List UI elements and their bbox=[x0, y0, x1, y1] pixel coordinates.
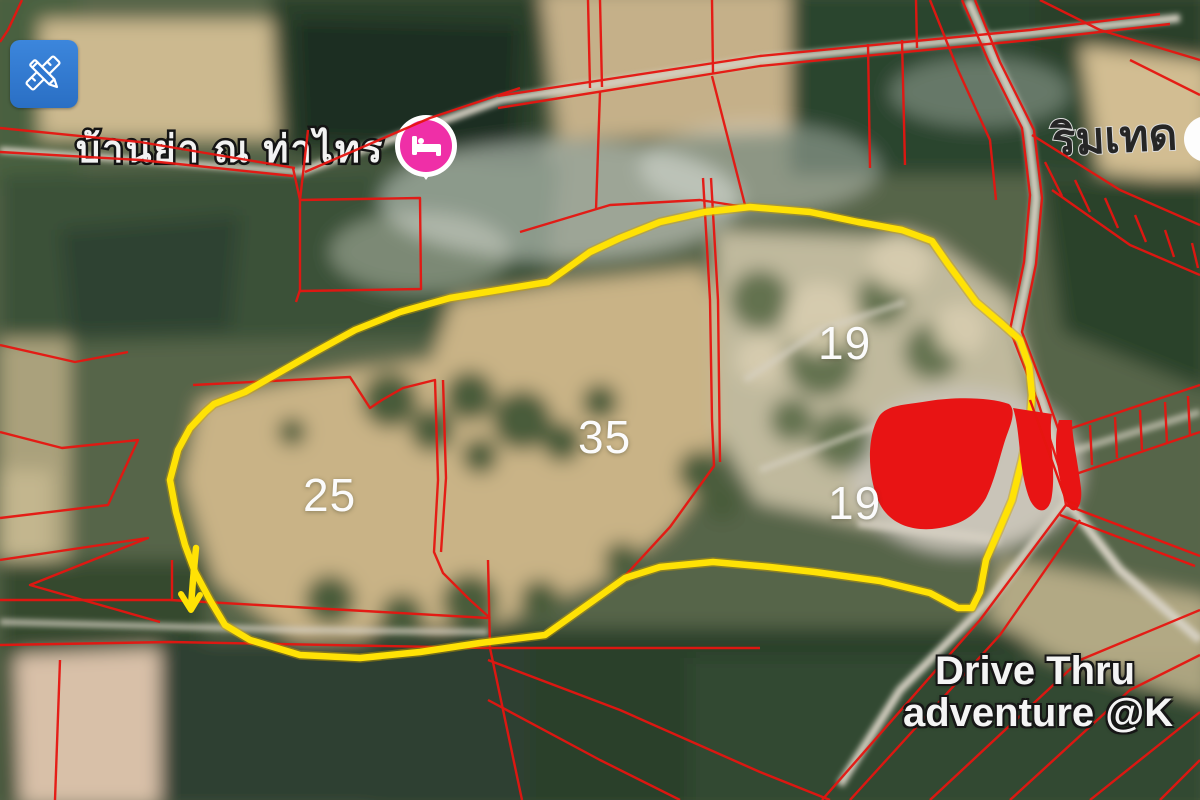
measure-tool-button[interactable] bbox=[10, 40, 78, 108]
place-label-line2: adventure @K bbox=[903, 692, 1200, 734]
satellite-map-view[interactable]: บ้านย่า ณ ท่าไทร ริมเทด bbox=[0, 0, 1200, 800]
place-label-top-left: บ้านย่า ณ ท่าไทร bbox=[76, 127, 384, 171]
ruler-pencil-icon bbox=[22, 52, 66, 96]
place-label-drive-thru: Drive Thru adventure @K bbox=[903, 650, 1200, 734]
place-label-line1: Drive Thru bbox=[935, 650, 1200, 692]
